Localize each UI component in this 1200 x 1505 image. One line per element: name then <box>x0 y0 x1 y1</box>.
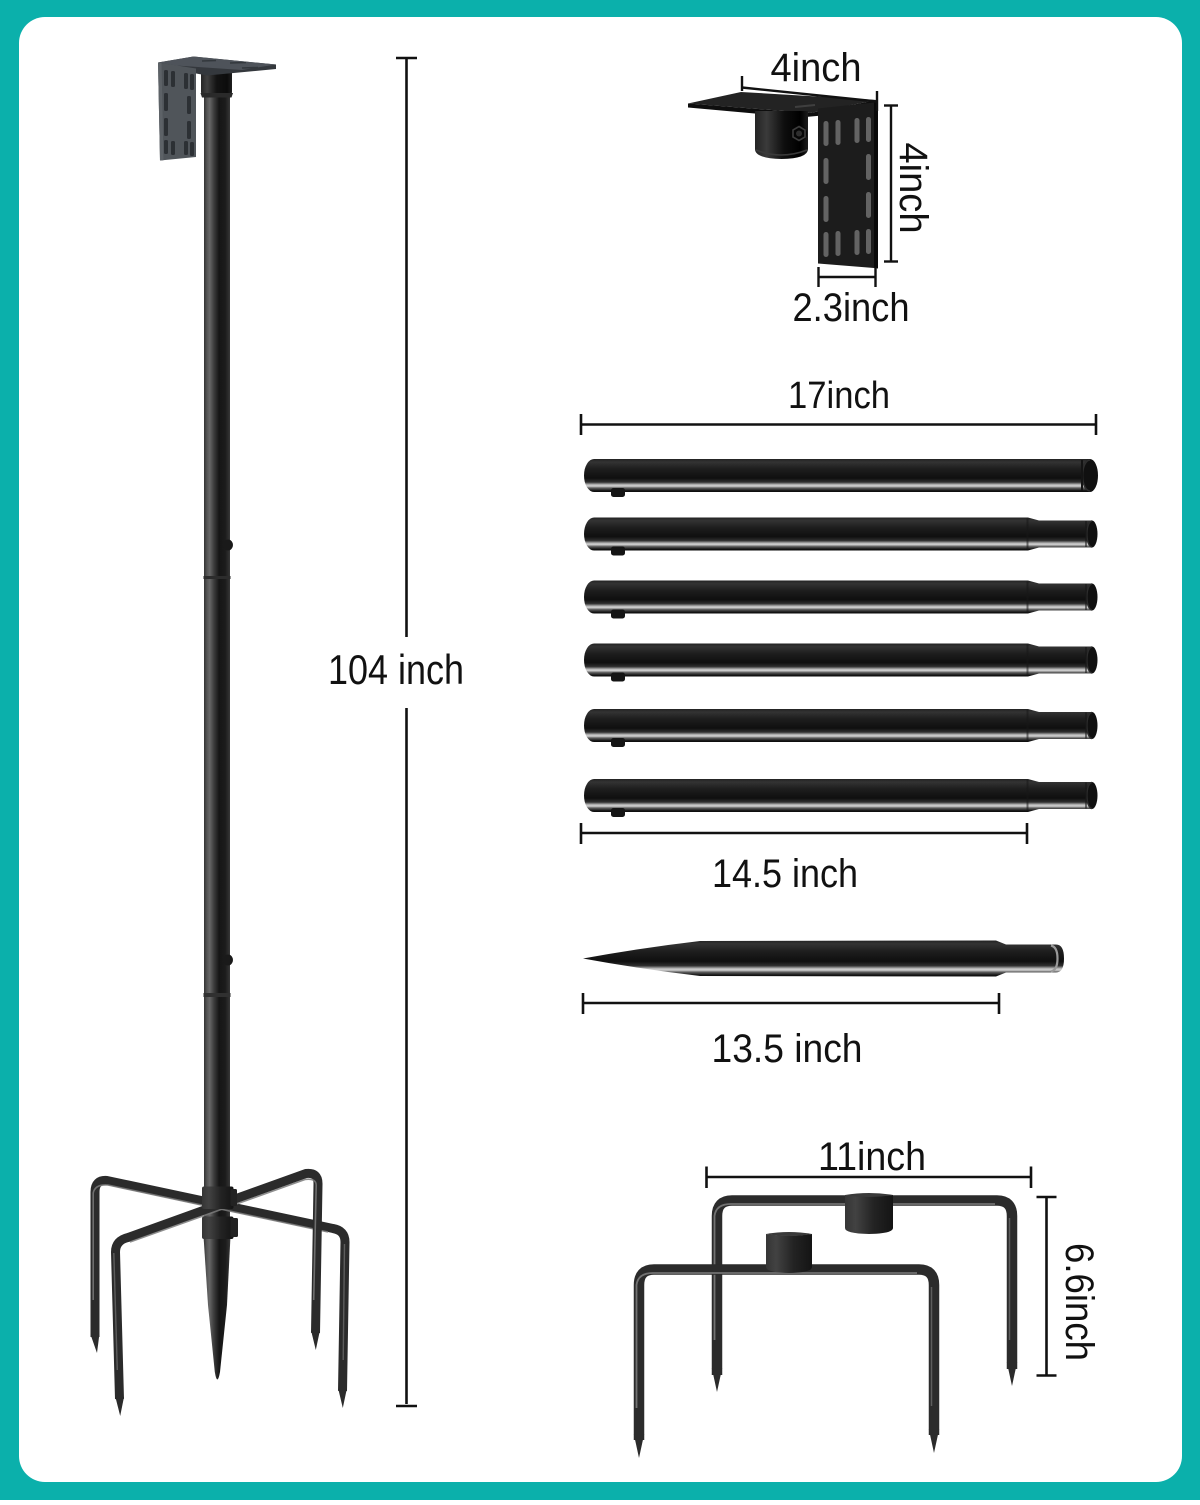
svg-text:11inch: 11inch <box>818 1135 926 1179</box>
svg-text:4inch: 4inch <box>891 143 935 234</box>
svg-text:14.5 inch: 14.5 inch <box>712 852 858 896</box>
svg-text:13.5 inch: 13.5 inch <box>712 1027 863 1071</box>
svg-text:104 inch: 104 inch <box>328 646 464 693</box>
svg-text:6.6inch: 6.6inch <box>1057 1243 1101 1361</box>
svg-text:4inch: 4inch <box>771 46 862 90</box>
svg-text:17inch: 17inch <box>788 375 890 417</box>
svg-text:2.3inch: 2.3inch <box>793 286 910 330</box>
